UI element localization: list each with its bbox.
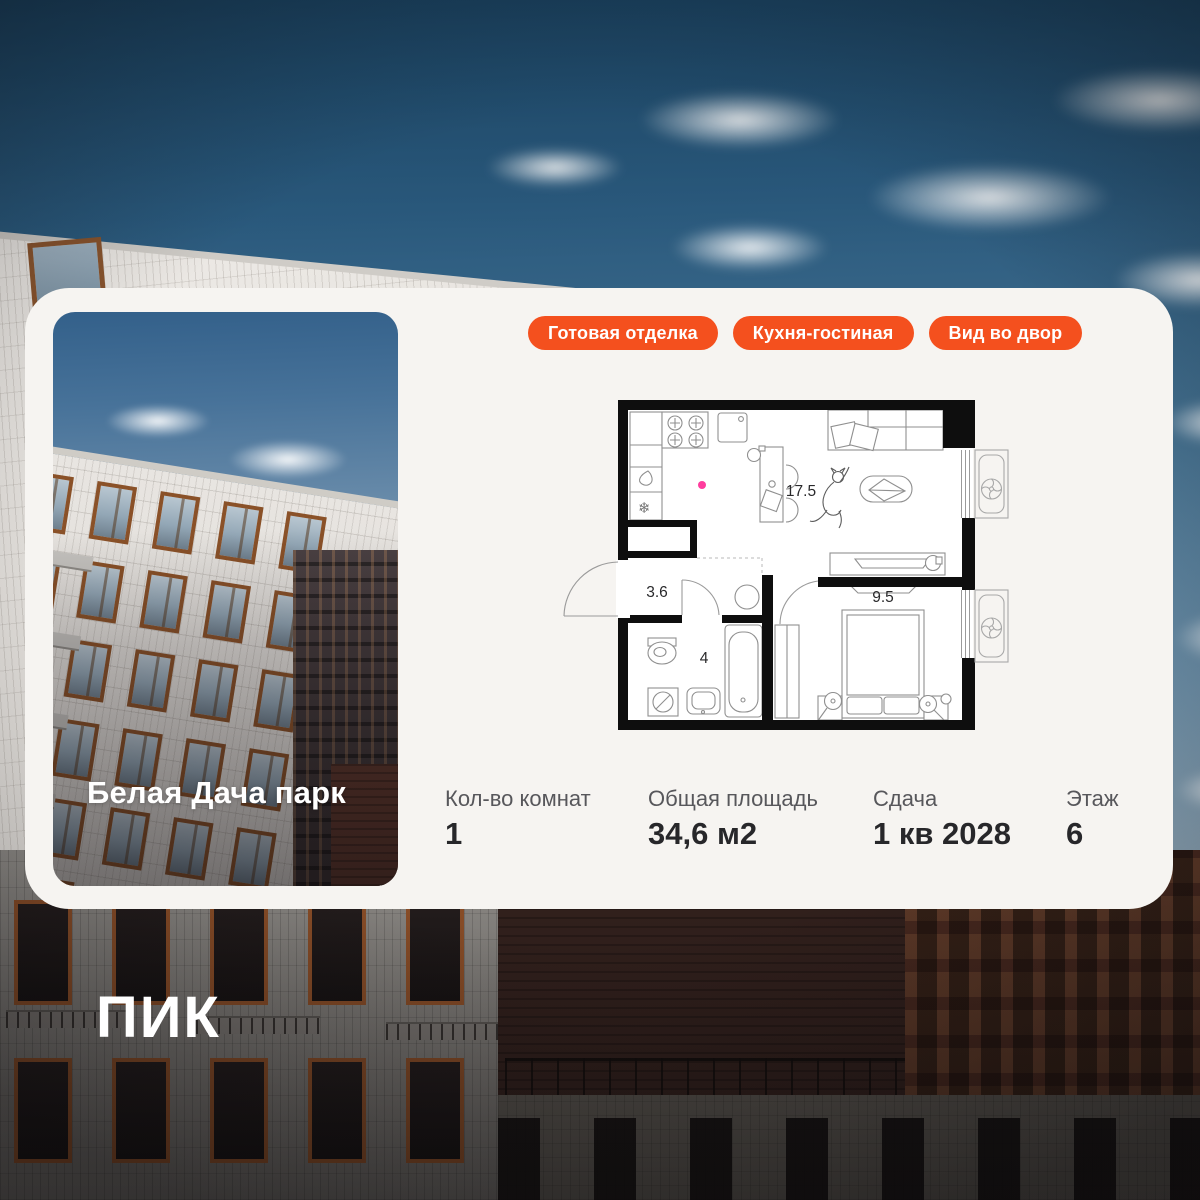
stat-label: Общая площадь (648, 786, 818, 812)
building-window (210, 1058, 268, 1163)
listing-card[interactable]: Белая Дача парк Готовая отделка Кухня-го… (25, 288, 1173, 909)
building-window (308, 900, 366, 1005)
badge-courtyard-view[interactable]: Вид во двор (929, 316, 1083, 350)
stat-value: 6 (1066, 817, 1119, 851)
room-label-bedroom: 9.5 (872, 589, 894, 606)
balcony-slab (386, 1022, 506, 1040)
feature-badges: Готовая отделка Кухня-гостиная Вид во дв… (528, 316, 1082, 350)
badge-finishing[interactable]: Готовая отделка (528, 316, 718, 350)
floorplan: ❄ 17.5 3.6 4 9.5 (548, 385, 1028, 745)
stat-label: Сдача (873, 786, 1011, 812)
project-photo: Белая Дача парк (53, 312, 398, 886)
stat-rooms: Кол-во комнат 1 (445, 786, 591, 851)
cloud (460, 140, 650, 195)
cloud (640, 215, 860, 280)
building-window (14, 1058, 72, 1163)
stat-floor: Этаж 6 (1066, 786, 1119, 851)
building-window (14, 900, 72, 1005)
building-window (406, 900, 464, 1005)
pik-logo: ПИК (96, 984, 221, 1051)
badge-kitchen-living[interactable]: Кухня-гостиная (733, 316, 914, 350)
stat-area: Общая площадь 34,6 м2 (648, 786, 818, 851)
cloud (820, 150, 1160, 245)
stat-label: Кол-во комнат (445, 786, 591, 812)
stat-value: 34,6 м2 (648, 817, 818, 851)
room-label-kitchen-living: 17.5 (786, 483, 816, 500)
stat-label: Этаж (1066, 786, 1119, 812)
stat-delivery: Сдача 1 кв 2028 (873, 786, 1011, 851)
stat-value: 1 (445, 817, 591, 851)
marker-dot (698, 481, 706, 489)
building-window (406, 1058, 464, 1163)
lower-building (498, 1095, 1200, 1200)
room-label-hallway: 3.6 (646, 584, 668, 601)
room-label-bathroom: 4 (700, 650, 709, 667)
building-window (112, 1058, 170, 1163)
snowflake-icon: ❄ (638, 500, 651, 517)
cloud (600, 80, 880, 160)
building-window (308, 1058, 366, 1163)
project-name: Белая Дача парк (87, 775, 346, 811)
stat-value: 1 кв 2028 (873, 817, 1011, 851)
